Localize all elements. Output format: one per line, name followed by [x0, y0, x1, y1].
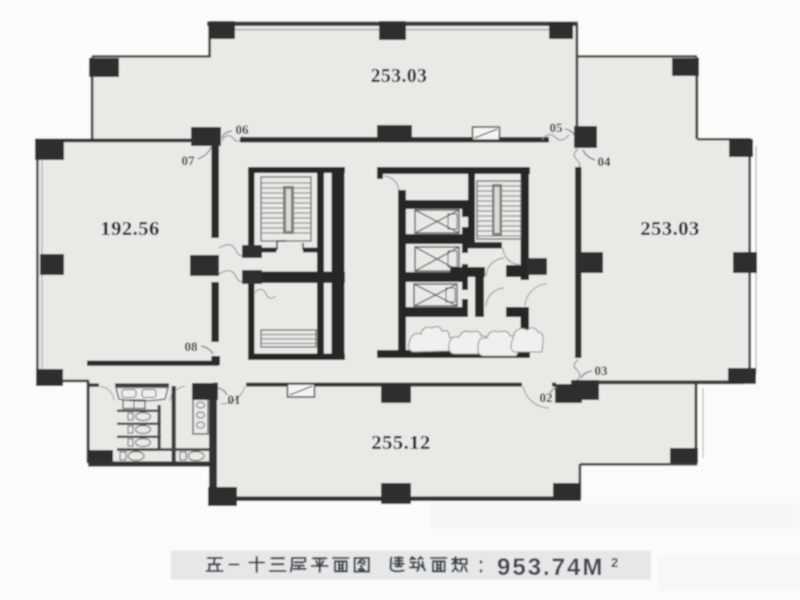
svg-text:953.74M: 953.74M: [497, 554, 604, 581]
svg-text:255.12: 255.12: [371, 432, 430, 454]
svg-text:06: 06: [236, 122, 250, 137]
svg-text:253.03: 253.03: [371, 66, 428, 87]
svg-text:04: 04: [598, 154, 612, 169]
svg-text:07: 07: [182, 153, 196, 168]
svg-text:192.56: 192.56: [100, 218, 159, 240]
svg-text:253.03: 253.03: [640, 218, 699, 240]
svg-text:08: 08: [185, 339, 199, 354]
svg-text:2: 2: [611, 555, 618, 570]
svg-text:05: 05: [550, 120, 564, 135]
svg-text:03: 03: [595, 363, 609, 378]
svg-text:01: 01: [228, 392, 241, 407]
